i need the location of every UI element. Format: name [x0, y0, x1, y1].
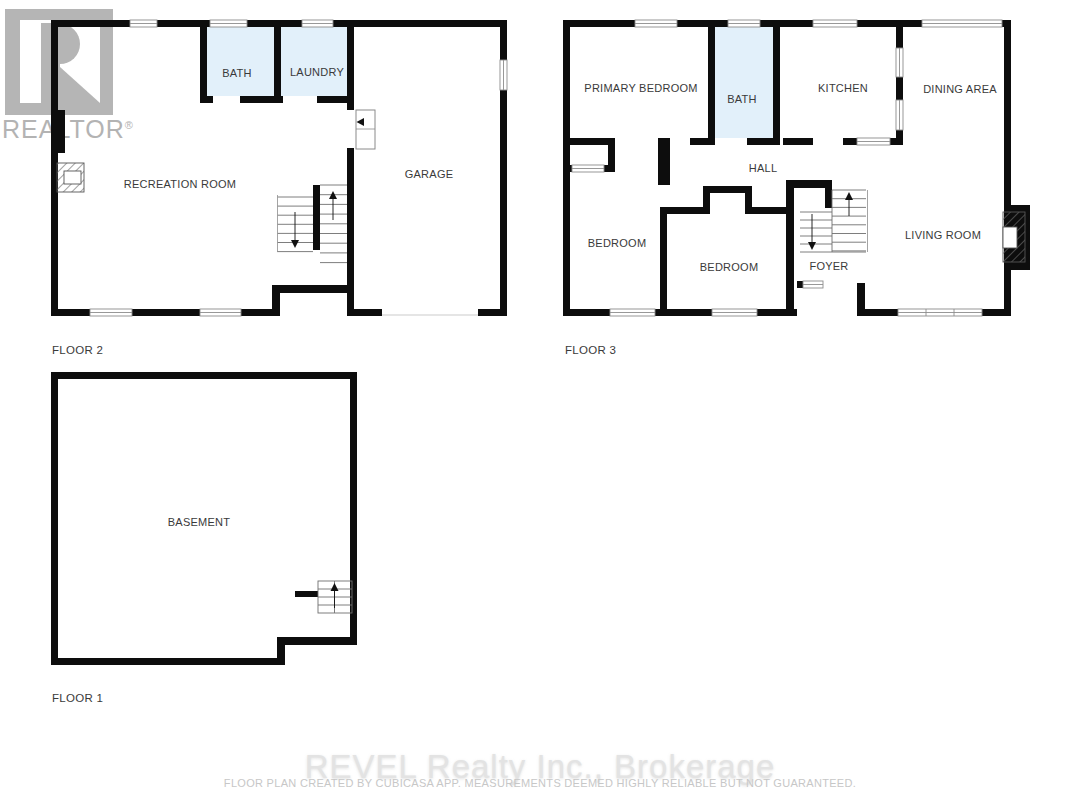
room-label-bath: BATH — [222, 67, 252, 79]
room-label-laundry: LAUNDRY — [290, 66, 344, 78]
stairs-down-arrow-icon — [291, 240, 299, 248]
room-label-living-room: LIVING ROOM — [905, 229, 981, 241]
floor-3-plan — [558, 10, 1036, 325]
stairs-icon — [277, 185, 347, 263]
room-label-garage: GARAGE — [405, 168, 454, 180]
garage-entry-door-icon — [356, 110, 375, 149]
floor-3-caption: FLOOR 3 — [565, 344, 616, 356]
bath-fill — [715, 27, 773, 138]
stairs-up-arrow-icon — [845, 192, 853, 200]
room-label-hall: HALL — [749, 162, 778, 174]
room-label-bedroom-1: BEDROOM — [588, 237, 647, 249]
fireplace-icon — [57, 163, 84, 192]
stairs-down-arrow-icon — [808, 242, 816, 250]
room-label-basement: BASEMENT — [168, 516, 231, 528]
disclaimer-text: FLOOR PLAN CREATED BY CUBICASA APP. MEAS… — [0, 777, 1080, 789]
room-label-kitchen: KITCHEN — [818, 82, 868, 94]
room-label-bath-2: BATH — [727, 93, 757, 105]
floorplan-page: REALTOR® — [0, 0, 1080, 810]
room-label-bedroom-2: BEDROOM — [700, 261, 759, 273]
room-label-foyer: FOYER — [809, 260, 848, 272]
floor-1-caption: FLOOR 1 — [52, 692, 103, 704]
fireplace-icon — [1003, 212, 1025, 262]
floor-2-caption: FLOOR 2 — [52, 344, 103, 356]
room-label-primary-bedroom: PRIMARY BEDROOM — [584, 82, 697, 94]
room-label-recreation-room: RECREATION ROOM — [124, 178, 236, 190]
stairs-up-arrow-icon — [331, 583, 339, 591]
walls — [563, 20, 1030, 316]
room-label-dining-area: DINING AREA — [923, 83, 997, 95]
